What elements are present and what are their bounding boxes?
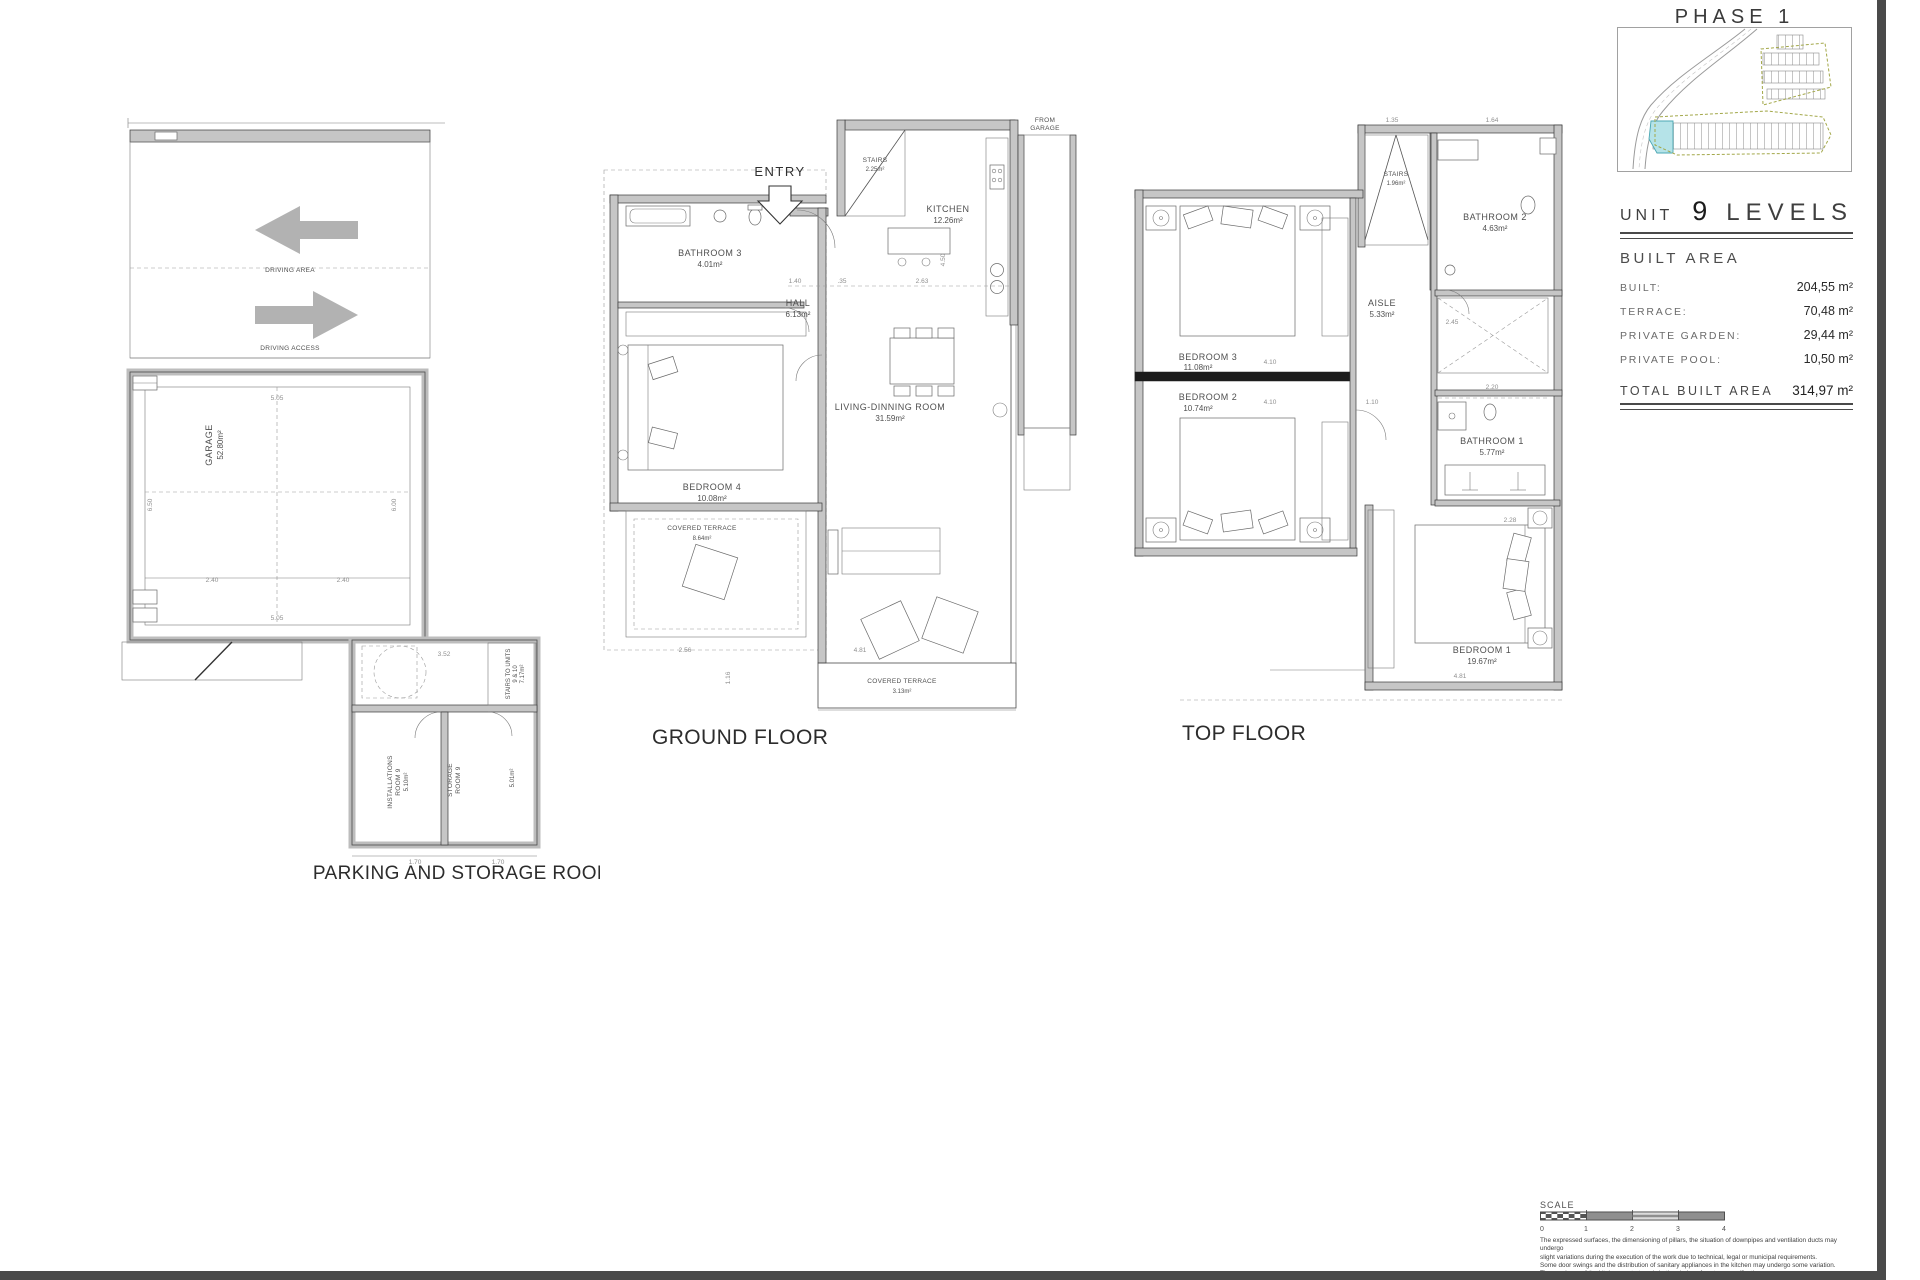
table-row: BUILT: 204,55 m² <box>1620 280 1853 294</box>
svg-text:STAIRS TO UNITS: STAIRS TO UNITS <box>506 649 512 700</box>
scale-block: SCALE 0 1 2 3 4 <box>1540 1200 1740 1239</box>
svg-text:10.74m²: 10.74m² <box>1183 404 1213 413</box>
svg-text:AISLE: AISLE <box>1368 298 1396 308</box>
arrow-left-icon <box>255 206 358 254</box>
divider-rule <box>1620 403 1853 410</box>
svg-text:BEDROOM 3: BEDROOM 3 <box>1179 352 1238 362</box>
dim: 1.40 <box>789 278 802 285</box>
void-cross <box>1438 298 1548 373</box>
dim: 5.05 <box>271 615 284 622</box>
exterior-stairs <box>122 642 302 680</box>
bathroom1-fixtures <box>1438 398 1548 495</box>
dim: 1.16 <box>725 671 732 684</box>
svg-text:BATHROOM 3: BATHROOM 3 <box>678 248 742 258</box>
dim: 3.52 <box>438 651 451 658</box>
svg-text:KITCHEN: KITCHEN <box>926 204 969 214</box>
unit-header: UNIT 9 LEVELS <box>1620 196 1853 227</box>
driving-area: DRIVING AREA DRIVING ACCESS <box>128 118 445 358</box>
svg-text:10.08m²: 10.08m² <box>697 494 727 503</box>
bedroom4-furniture <box>618 312 822 470</box>
site-map <box>1617 27 1852 172</box>
built-area-heading: BUILT AREA <box>1620 250 1853 267</box>
top-floor-title: TOP FLOOR <box>1182 722 1306 745</box>
disclaimer-line: slight variations during the execution o… <box>1540 1254 1850 1262</box>
svg-text:19.67m²: 19.67m² <box>1467 657 1497 666</box>
svg-text:5.77m²: 5.77m² <box>1480 448 1505 457</box>
bottom-terrace-label: COVERED TERRACE 3.13m² <box>867 678 937 695</box>
plan-sheet: DRIVING AREA DRIVING ACCESS GARAGE 52.80… <box>0 0 1920 1280</box>
svg-text:11.08m²: 11.08m² <box>1184 363 1213 372</box>
table-row: TERRACE: 70,48 m² <box>1620 304 1853 318</box>
unit-number: 9 <box>1692 196 1707 227</box>
scale-bar: 0 1 2 3 4 <box>1540 1210 1740 1234</box>
dim: 6.50 <box>147 498 154 511</box>
unit-word: UNIT <box>1620 207 1673 225</box>
table-row: PRIVATE POOL: 10,50 m² <box>1620 352 1853 366</box>
svg-text:COVERED TERRACE: COVERED TERRACE <box>867 678 937 685</box>
dim: 2.56 <box>679 647 692 654</box>
unit-levels-word: LEVELS <box>1726 199 1853 227</box>
svg-text:STORAGE: STORAGE <box>447 763 454 797</box>
total-row: TOTAL BUILT AREA 314,97 m² <box>1620 383 1853 398</box>
living-furniture <box>797 210 1007 659</box>
dim: 1.10 <box>1366 399 1379 406</box>
bedroom3-furniture <box>1146 206 1348 336</box>
entry-label: ENTRY <box>754 164 805 179</box>
dim: 2.45 <box>1446 319 1459 326</box>
dim: 6.00 <box>391 498 398 511</box>
dim: 4.50 <box>940 253 947 266</box>
svg-text:31.59m²: 31.59m² <box>875 414 905 423</box>
svg-text:ROOM 9: ROOM 9 <box>455 766 462 794</box>
scale-label: SCALE <box>1540 1200 1740 1210</box>
bedroom1-label: BEDROOM 1 19.67m² <box>1453 645 1512 666</box>
scale-tick: 0 <box>1540 1226 1544 1233</box>
driving-access-label: DRIVING ACCESS <box>260 345 320 352</box>
installations-room-label: INSTALLATIONS ROOM 9 5.10m² <box>387 755 410 809</box>
bottom-terrace <box>818 663 1016 710</box>
storage-room-label: STORAGE ROOM 9 <box>447 763 462 797</box>
svg-text:5.33m²: 5.33m² <box>1370 310 1395 319</box>
svg-text:HALL: HALL <box>786 298 811 308</box>
kitchen-label: KITCHEN 12.26m² <box>926 204 969 225</box>
top-stairs <box>1365 135 1428 245</box>
svg-text:BEDROOM 4: BEDROOM 4 <box>683 482 742 492</box>
bedroom4-label: BEDROOM 4 10.08m² <box>683 482 742 503</box>
svg-text:GARAGE: GARAGE <box>1030 125 1060 132</box>
svg-text:3.13m²: 3.13m² <box>893 689 912 695</box>
svg-text:7.17m²: 7.17m² <box>520 665 526 684</box>
ground-floor-title: GROUND FLOOR <box>652 726 828 749</box>
disclaimer-line: The expressed surfaces, the dimensioning… <box>1540 1237 1850 1254</box>
driving-area-label: DRIVING AREA <box>265 267 315 274</box>
unit-info-panel: UNIT 9 LEVELS BUILT AREA BUILT: 204,55 m… <box>1620 196 1853 410</box>
svg-text:LIVING-DINNING ROOM: LIVING-DINNING ROOM <box>835 402 946 412</box>
garage: GARAGE 52.80m² 5.05 6.50 6.00 2.40 2.40 … <box>130 372 425 640</box>
svg-text:ROOM 9: ROOM 9 <box>395 768 402 796</box>
bedroom3-label: BEDROOM 3 11.08m² <box>1179 352 1238 372</box>
bedroom2-label: BEDROOM 2 10.74m² <box>1179 392 1238 413</box>
svg-text:4.63m²: 4.63m² <box>1483 224 1508 233</box>
svg-text:8.64m²: 8.64m² <box>693 536 712 542</box>
stairs-to-units-label: STAIRS TO UNITS 9 & 10 7.17m² <box>506 649 526 700</box>
svg-text:STAIRS: STAIRS <box>863 157 888 164</box>
svg-text:4.01m²: 4.01m² <box>698 260 723 269</box>
bathroom2-label: BATHROOM 2 4.63m² <box>1463 212 1527 233</box>
page-edge-bottom <box>0 1271 1886 1280</box>
dim: 4.10 <box>1264 399 1277 406</box>
garage-label: GARAGE 52.80m² <box>204 424 225 466</box>
svg-text:9 & 10: 9 & 10 <box>513 665 519 683</box>
interior-stairs <box>845 130 905 216</box>
svg-text:FROM: FROM <box>1035 117 1055 124</box>
living-label: LIVING-DINNING ROOM 31.59m² <box>835 402 946 423</box>
ground-floor-svg: ENTRY STAIRS 2.25m² KITCHEN 12.26m² FROM… <box>590 110 1080 760</box>
svg-text:BATHROOM 1: BATHROOM 1 <box>1460 436 1524 446</box>
storage-room-area: 5.01m² <box>510 769 516 788</box>
svg-text:5.01m²: 5.01m² <box>510 769 516 788</box>
top-floor-svg: STAIRS 1.96m² BATHROOM 2 4.63m² AISLE 5.… <box>1120 110 1580 760</box>
dim: 5.05 <box>271 395 284 402</box>
dim: 4.10 <box>1264 359 1277 366</box>
table-row: PRIVATE GARDEN: 29,44 m² <box>1620 328 1853 342</box>
svg-text:COVERED TERRACE: COVERED TERRACE <box>667 525 737 532</box>
svg-text:BEDROOM 1: BEDROOM 1 <box>1453 645 1512 655</box>
svg-text:2.25m²: 2.25m² <box>866 167 885 173</box>
divider-rule <box>1620 232 1853 239</box>
svg-text:12.26m²: 12.26m² <box>933 216 963 225</box>
scale-tick: 3 <box>1676 1226 1680 1233</box>
storage-rooms: STAIRS TO UNITS 9 & 10 7.17m² INSTALLATI… <box>352 640 537 866</box>
dim: 4.81 <box>854 647 867 654</box>
scale-tick: 4 <box>1722 1226 1726 1233</box>
dim: 2.40 <box>206 577 219 584</box>
stairs-label: STAIRS 1.96m² <box>1384 171 1409 187</box>
built-area-table: BUILT: 204,55 m² TERRACE: 70,48 m² PRIVA… <box>1620 280 1853 366</box>
dim: 1.64 <box>1486 117 1499 124</box>
from-garage-label: FROM GARAGE <box>1030 117 1060 132</box>
page-edge-right <box>1877 0 1886 1280</box>
phase-title-text: PHASE 1 <box>1675 6 1794 28</box>
svg-text:6.13m²: 6.13m² <box>786 310 811 319</box>
parking-plan-title: PARKING AND STORAGE ROOM <box>313 863 600 884</box>
bathroom1-label: BATHROOM 1 5.77m² <box>1460 436 1524 457</box>
svg-text:BATHROOM 2: BATHROOM 2 <box>1463 212 1527 222</box>
dim: 2.63 <box>916 278 929 285</box>
parking-plan-svg: DRIVING AREA DRIVING ACCESS GARAGE 52.80… <box>100 100 600 890</box>
aisle-label: AISLE 5.33m² <box>1368 298 1396 319</box>
dim: 2.40 <box>337 577 350 584</box>
svg-text:GARAGE: GARAGE <box>204 424 214 466</box>
svg-text:52.80m²: 52.80m² <box>216 430 225 460</box>
bathroom3-label: BATHROOM 3 4.01m² <box>678 248 742 269</box>
disclaimer-line: Some door swings and the distribution of… <box>1540 1262 1850 1270</box>
dim: 4.81 <box>1454 673 1467 680</box>
dim: 2.28 <box>1504 517 1517 524</box>
dim: .35 <box>837 278 846 285</box>
svg-text:1.96m²: 1.96m² <box>1387 181 1406 187</box>
phase-title: PHASE 1 <box>1617 6 1852 29</box>
side-terrace-label: COVERED TERRACE 8.64m² <box>667 525 737 542</box>
dim: 2.20 <box>1486 384 1499 391</box>
svg-text:5.10m²: 5.10m² <box>404 773 410 792</box>
arrow-right-icon <box>255 291 358 339</box>
dim: 1.35 <box>1386 117 1399 124</box>
svg-text:BEDROOM 2: BEDROOM 2 <box>1179 392 1238 402</box>
entry-arrow-icon <box>758 186 802 224</box>
svg-text:INSTALLATIONS: INSTALLATIONS <box>387 755 394 809</box>
garage-staircase <box>1024 135 1070 490</box>
svg-text:STAIRS: STAIRS <box>1384 171 1409 178</box>
kitchen-fixtures <box>888 138 1008 316</box>
scale-tick: 1 <box>1584 1226 1588 1233</box>
scale-tick: 2 <box>1630 1226 1634 1233</box>
stairs-label: STAIRS 2.25m² <box>863 157 888 173</box>
